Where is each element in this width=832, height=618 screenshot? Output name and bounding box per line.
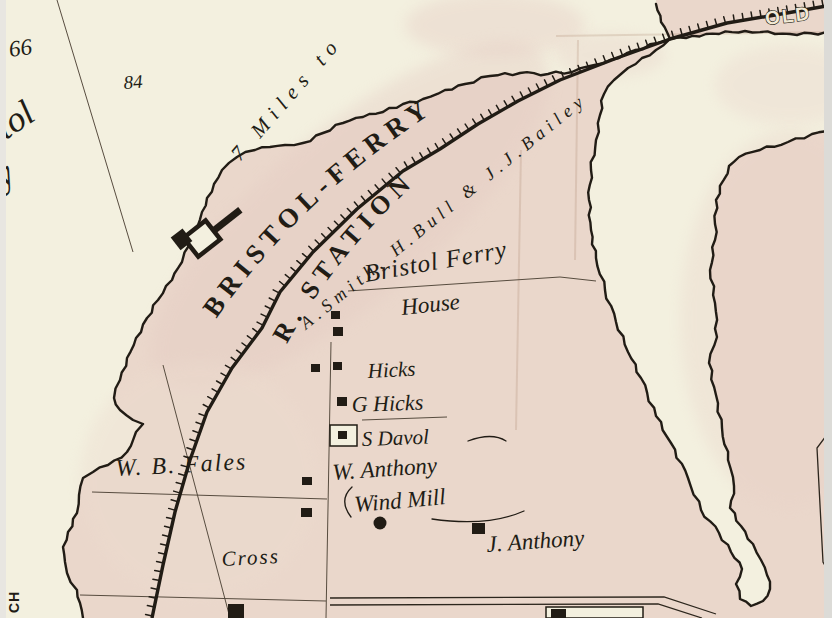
bristol-ferry-map: 66 84 stol ry 7 Miles to BRISTOL-FERRY R… [0, 0, 832, 618]
building-marker [472, 523, 485, 534]
ch-label-partial: CH [6, 591, 22, 613]
plot-number-84: 84 [123, 71, 144, 93]
windmill-marker [374, 517, 387, 530]
building-marker [551, 609, 566, 618]
plot-number-66: 66 [7, 34, 34, 62]
building-marker [302, 477, 312, 485]
building-marker [311, 364, 320, 372]
building-marker [333, 362, 342, 370]
building-marker [338, 431, 347, 439]
building-marker [301, 508, 312, 517]
building-marker [228, 604, 244, 618]
page-edge-right [824, 0, 832, 618]
building-marker [337, 397, 347, 406]
g-hicks-label: G Hicks [351, 390, 423, 417]
hicks-label: Hicks [366, 357, 416, 384]
map-canvas: 66 84 stol ry 7 Miles to BRISTOL-FERRY R… [0, 0, 832, 618]
building-marker [333, 327, 343, 336]
cross-label: Cross [221, 544, 280, 571]
page-edge-left [0, 0, 6, 618]
s-davol-label: S Davol [361, 425, 429, 451]
